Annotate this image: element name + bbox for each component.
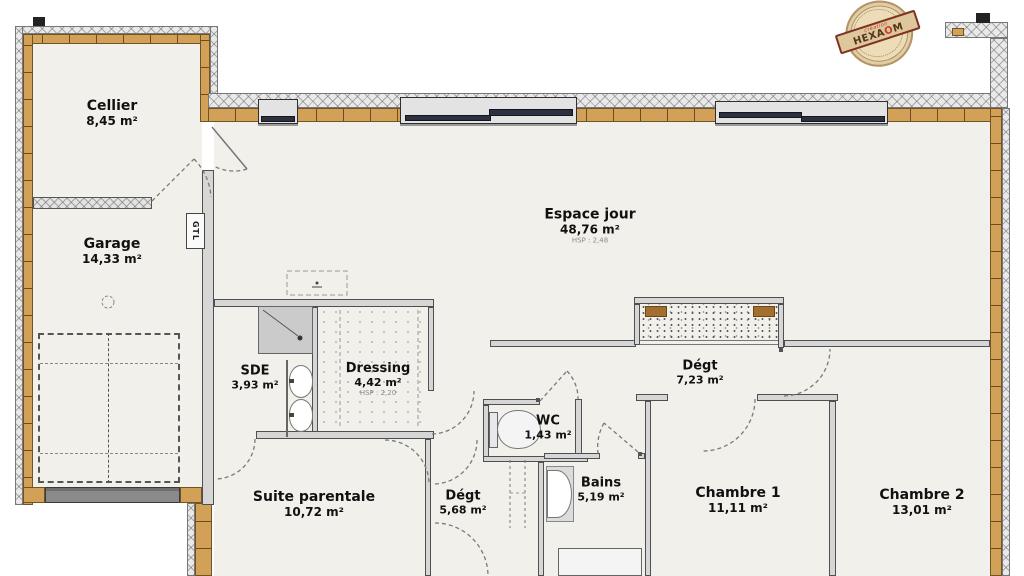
annotations-layer: [0, 0, 1024, 576]
door-leaf-bains: [604, 423, 638, 452]
door-leaf-cellier: [212, 127, 247, 169]
door-arc-sde: [215, 439, 255, 479]
room-area: 48,76 m²: [544, 223, 635, 237]
room-area: 1,43 m²: [524, 429, 571, 442]
room-label-espace-jour: Espace jour 48,76 m² HSP : 2,48: [544, 207, 635, 246]
room-label-degagement-sud: Dégt 5,68 m²: [439, 490, 486, 517]
room-label-dressing: Dressing 4,42 m² HSP : 2,20: [346, 362, 411, 398]
technical-marks: [102, 127, 783, 528]
gtl-duct: GTL: [186, 213, 205, 249]
room-name: Garage: [82, 236, 142, 252]
room-area: 14,33 m²: [82, 252, 142, 266]
hinge-chambre2: [779, 348, 783, 352]
room-label-sde: SDE 3,93 m²: [231, 365, 278, 392]
door-arc-garage: [194, 159, 211, 197]
room-name: SDE: [231, 365, 278, 379]
door-arc-cellier: [214, 166, 247, 171]
room-area: 3,93 m²: [231, 379, 278, 392]
room-ceiling-height: HSP : 2,20: [346, 389, 411, 398]
room-label-chambre-2: Chambre 2 13,01 m²: [879, 487, 964, 517]
door-arc-chambre2: [784, 349, 830, 396]
room-area: 8,45 m²: [86, 114, 138, 128]
door-arc-corridor-south: [435, 523, 488, 576]
room-name: Dégt: [676, 360, 723, 374]
room-area: 5,19 m²: [577, 491, 624, 504]
room-area: 4,42 m²: [346, 376, 411, 389]
shower-drain-line: [263, 310, 298, 336]
room-label-chambre-1: Chambre 1 11,11 m²: [695, 485, 780, 515]
room-label-wc: WC 1,43 m²: [524, 415, 571, 442]
room-label-garage: Garage 14,33 m²: [82, 236, 142, 266]
hinge-wc: [536, 398, 540, 402]
floor-plan: GTL: [0, 0, 1024, 576]
room-ceiling-height: HSP : 2,48: [544, 237, 635, 246]
door-arc-bains: [598, 423, 604, 453]
room-area: 10,72 m²: [253, 505, 375, 519]
room-name: WC: [524, 415, 571, 429]
door-arc-dressing: [432, 391, 474, 434]
room-label-degagement-nord: Dégt 7,23 m²: [676, 360, 723, 387]
room-name: Espace jour: [544, 207, 635, 223]
room-area: 5,68 m²: [439, 504, 486, 517]
room-name: Suite parentale: [253, 489, 375, 505]
room-area: 13,01 m²: [879, 503, 964, 517]
room-name: Chambre 2: [879, 487, 964, 503]
door-arc-chambre1: [703, 399, 755, 451]
room-label-bains: Bains 5,19 m²: [577, 477, 624, 504]
room-area: 7,23 m²: [676, 374, 723, 387]
door-leaf-garage: [152, 159, 194, 201]
room-label-suite-parentale: Suite parentale 10,72 m²: [253, 489, 375, 519]
garage-drain-mark: [102, 296, 114, 308]
room-name: Bains: [577, 477, 624, 491]
door-arc-wc: [567, 371, 578, 399]
room-name: Dressing: [346, 362, 411, 376]
door-arc-suite: [385, 440, 429, 484]
room-label-cellier: Cellier 8,45 m²: [86, 98, 138, 128]
room-name: Chambre 1: [695, 485, 780, 501]
door-leaf-wc: [540, 371, 567, 401]
door-arc-corridor: [433, 440, 477, 484]
shower-drain: [298, 336, 303, 341]
room-name: Cellier: [86, 98, 138, 114]
room-name: Dégt: [439, 490, 486, 504]
hinge-bains: [638, 452, 642, 456]
brand-suffix: M: [892, 21, 905, 35]
ceiling-mark-dot: [316, 282, 319, 285]
room-area: 11,11 m²: [695, 501, 780, 515]
